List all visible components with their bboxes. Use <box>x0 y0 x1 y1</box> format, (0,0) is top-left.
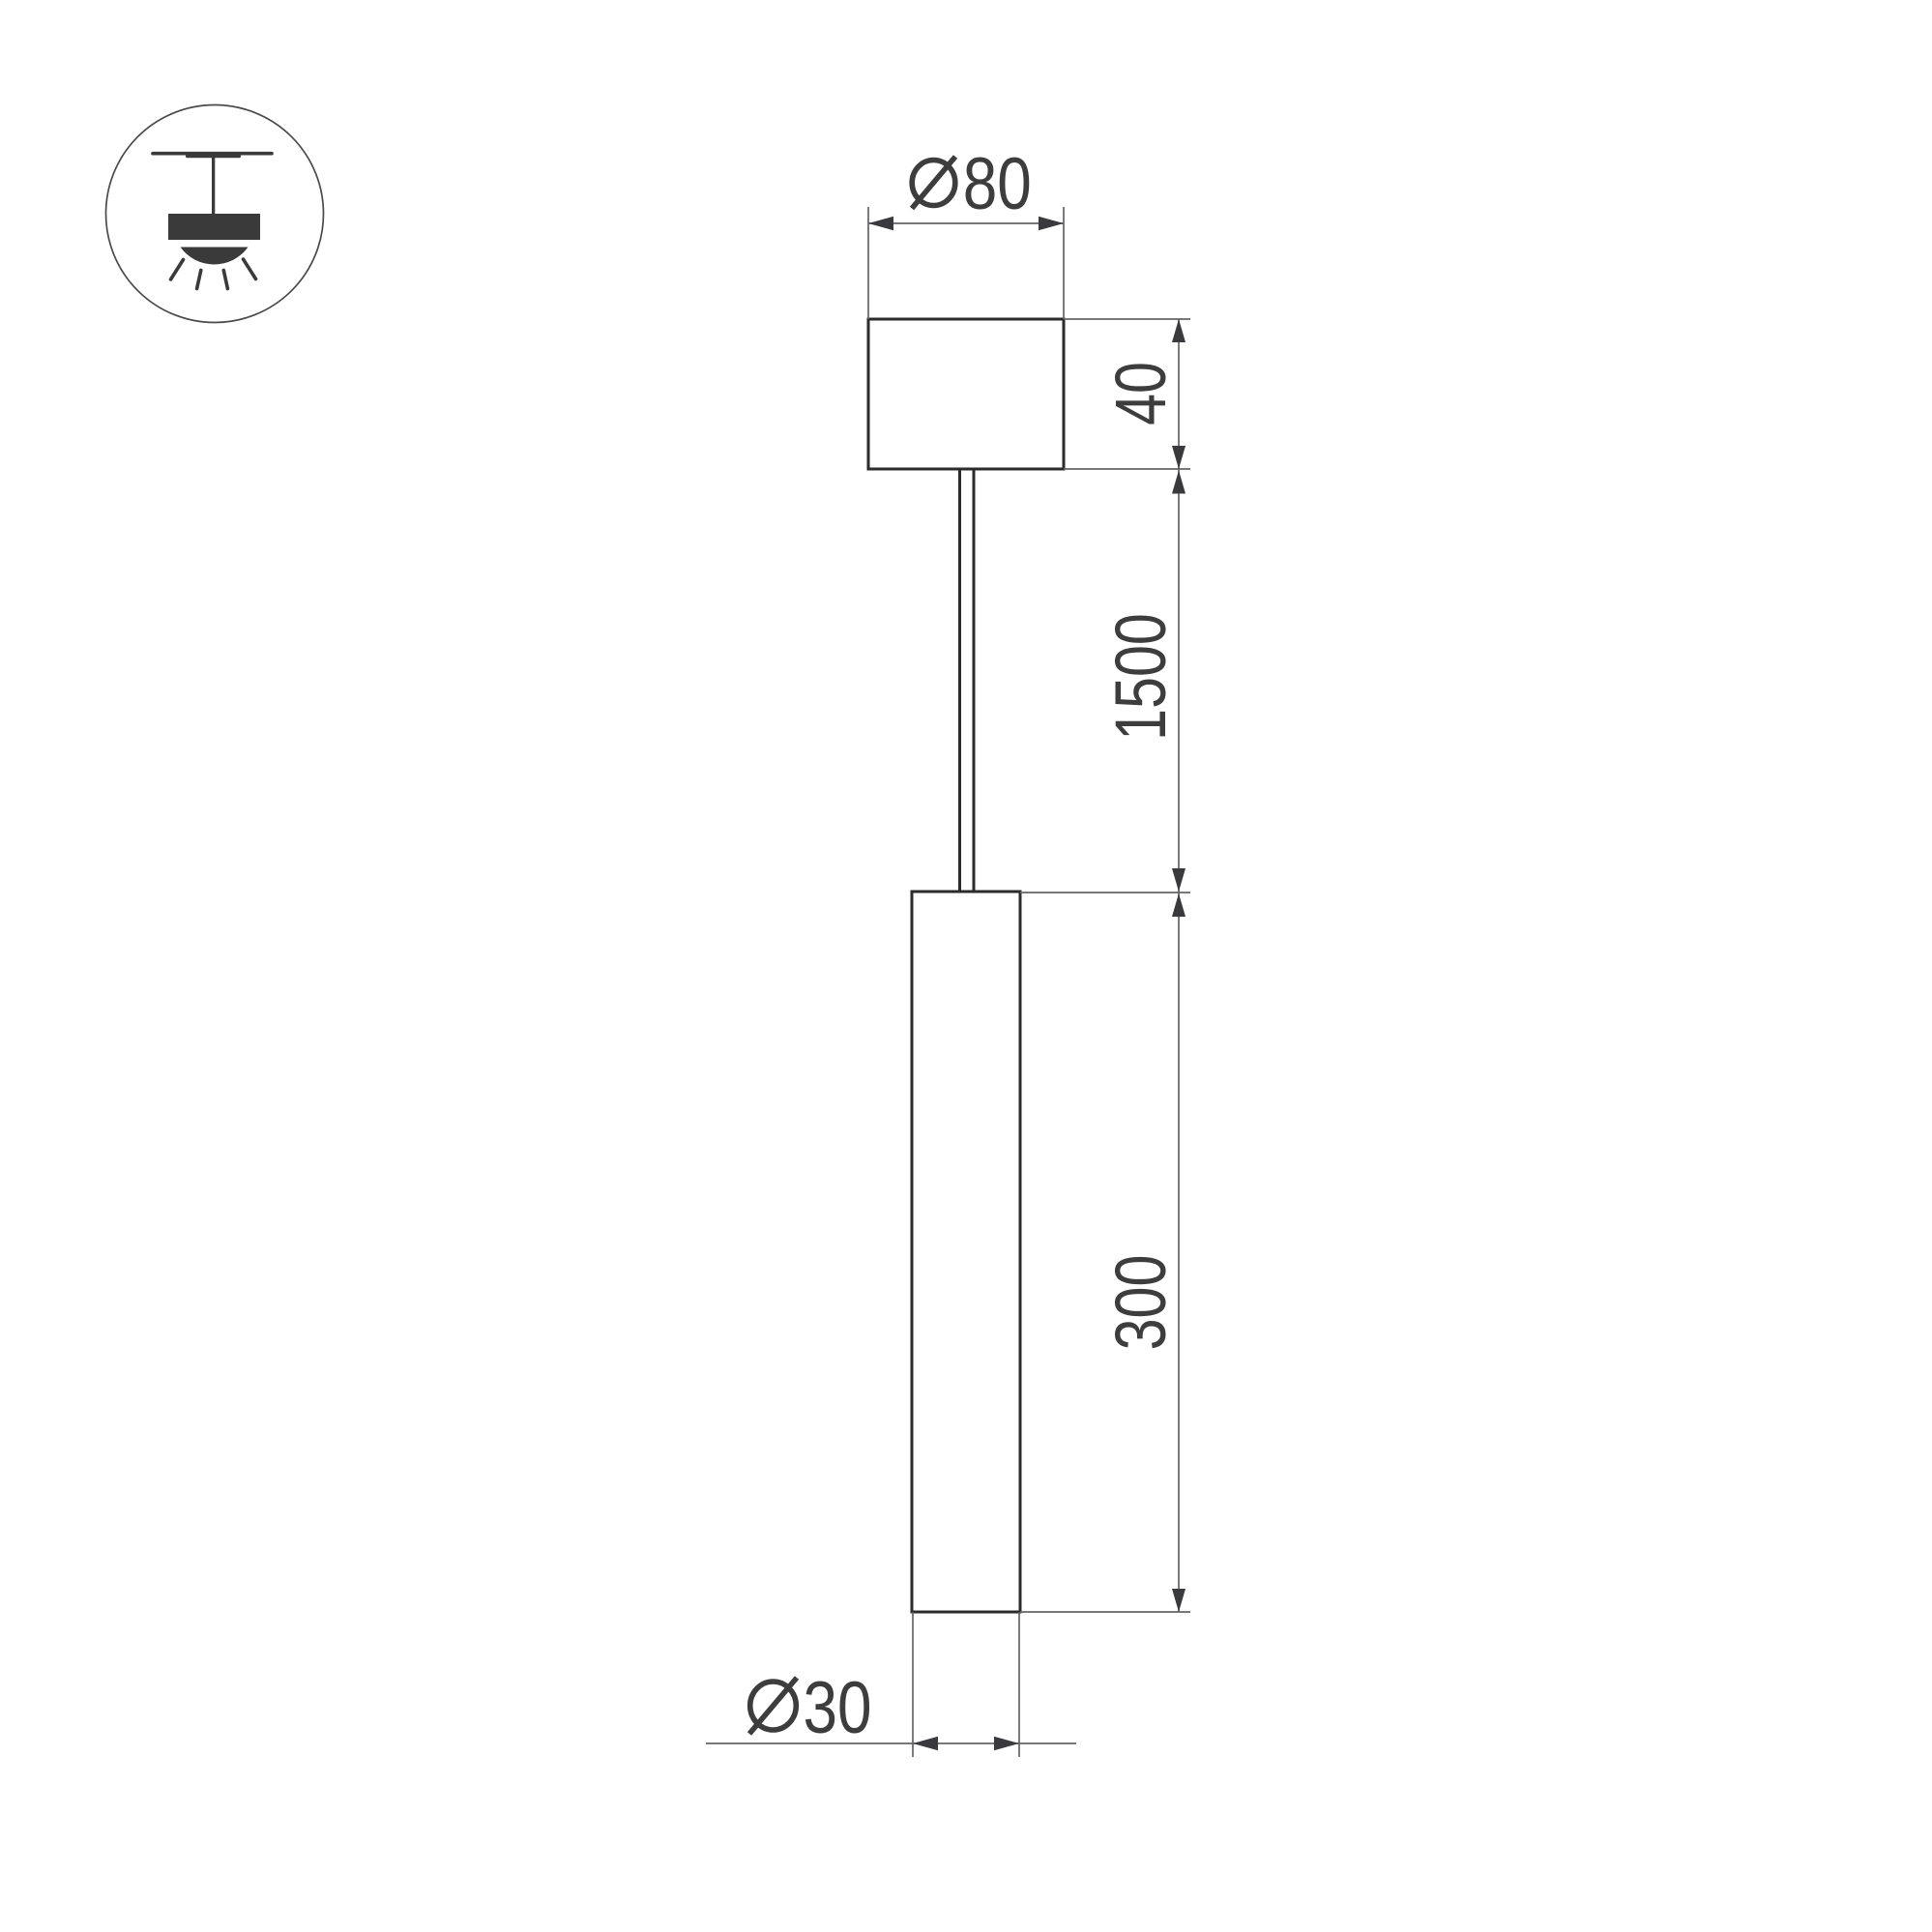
svg-text:30: 30 <box>804 1666 872 1749</box>
svg-text:40: 40 <box>1101 362 1182 425</box>
svg-text:80: 80 <box>963 142 1032 225</box>
svg-text:300: 300 <box>1101 1255 1182 1351</box>
svg-text:1500: 1500 <box>1101 613 1182 741</box>
